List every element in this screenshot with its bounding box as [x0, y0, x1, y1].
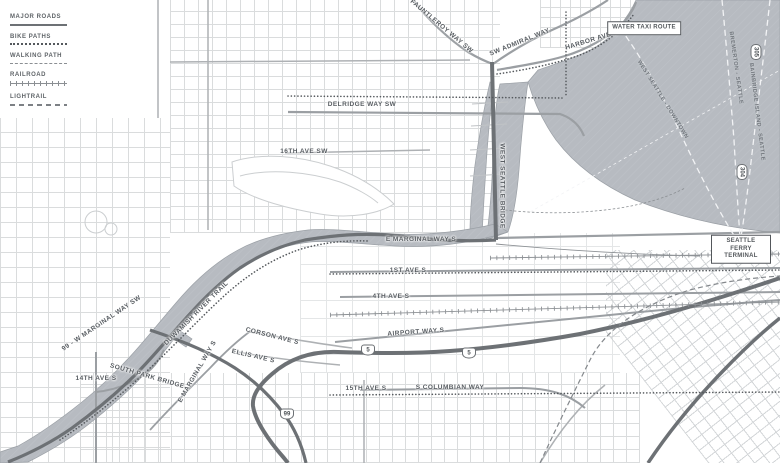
legend-label: LIGHTRAIL — [10, 94, 80, 100]
map-geometry — [0, 0, 780, 463]
lightrail-line — [540, 276, 780, 463]
i5-shield-east: 5 — [462, 348, 476, 359]
delridge-way — [288, 112, 584, 136]
road-label-e-marginal-way-s: E MARGINAL WAY S — [386, 237, 456, 244]
road-label-1st-ave-s: 1ST AVE S — [390, 268, 427, 275]
legend-swatch-solid-line — [10, 24, 67, 26]
seattle-ferry-terminal-box: SEATTLE FERRY TERMINAL — [711, 235, 771, 264]
sr305-shield: 305 — [751, 44, 762, 60]
i5-shield-west: 5 — [361, 345, 375, 356]
legend-item-railroad: RAILROAD — [10, 72, 80, 87]
water-taxi-route-box: WATER TAXI ROUTE — [607, 21, 681, 35]
sr304-shield: 304 — [737, 164, 748, 180]
road-label-16th-ave-sw: 16TH AVE SW — [280, 149, 328, 156]
road-label-14th-ave-s: 14TH AVE S — [76, 376, 117, 383]
pond-small — [105, 223, 117, 235]
legend: MAJOR ROADS BIKE PATHS WALKING PATH RAIL… — [10, 14, 80, 118]
legend-item-major-roads: MAJOR ROADS — [10, 14, 80, 26]
road-label-delridge-way-sw: DELRIDGE WAY SW — [328, 102, 397, 109]
legend-item-walking-path: WALKING PATH — [10, 53, 80, 64]
road-label-west-seattle-bridge: WEST SEATTLE BRIDGE — [498, 143, 505, 228]
road-label-s-columbian-way: S COLUMBIAN WAY — [416, 385, 485, 392]
legend-label: WALKING PATH — [10, 53, 80, 59]
transit-map-canvas: MAJOR ROADS BIKE PATHS WALKING PATH RAIL… — [0, 0, 780, 463]
alaskan-way — [648, 318, 780, 463]
legend-swatch-longdash-line — [10, 104, 67, 106]
legend-swatch-dashed-line — [10, 63, 67, 64]
legend-label: BIKE PATHS — [10, 34, 80, 40]
sr99-shield: 99 — [280, 409, 294, 420]
road-label-4th-ave-s: 4TH AVE S — [373, 294, 410, 301]
greenbelt-contours — [85, 156, 394, 235]
ws-greenbelt — [232, 156, 394, 216]
pond — [85, 211, 107, 233]
legend-swatch-dotted-line — [10, 43, 67, 45]
legend-item-bike-paths: BIKE PATHS — [10, 34, 80, 46]
legend-label: MAJOR ROADS — [10, 14, 80, 20]
road-label-15th-ave-s: 15TH AVE S — [346, 386, 387, 393]
legend-label: RAILROAD — [10, 72, 80, 78]
legend-swatch-hatched-line — [10, 81, 67, 86]
legend-item-lightrail: LIGHTRAIL — [10, 94, 80, 106]
